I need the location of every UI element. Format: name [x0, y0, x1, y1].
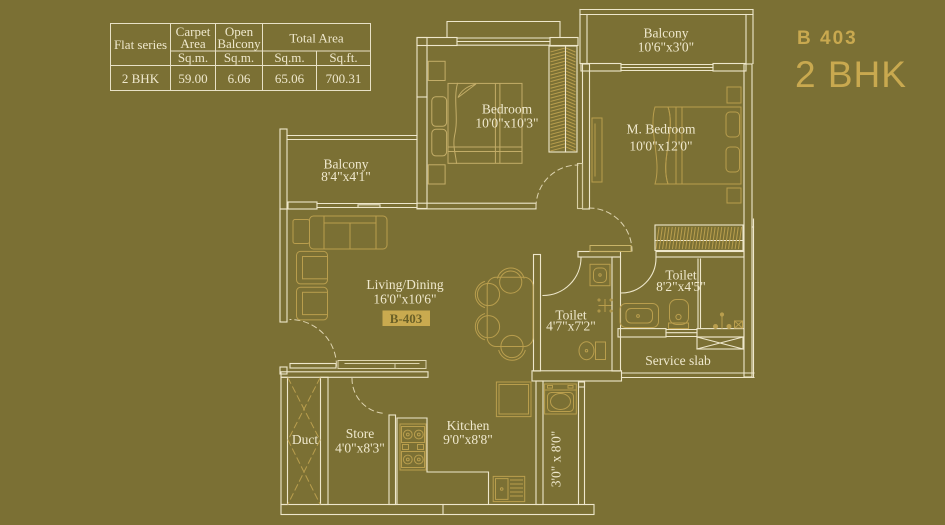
- svg-text:Sq.m.: Sq.m.: [178, 50, 208, 65]
- svg-text:59.00: 59.00: [178, 71, 207, 86]
- svg-text:8'4"x4'1": 8'4"x4'1": [321, 169, 371, 184]
- svg-text:Store: Store: [346, 426, 375, 441]
- svg-text:6.06: 6.06: [228, 71, 251, 86]
- svg-text:16'0"x10'6": 16'0"x10'6": [373, 292, 436, 307]
- svg-text:Balcony: Balcony: [217, 36, 261, 51]
- svg-text:2 BHK: 2 BHK: [122, 71, 160, 86]
- svg-text:9'0"x8'8": 9'0"x8'8": [443, 432, 493, 447]
- svg-text:Flat series: Flat series: [114, 37, 167, 52]
- svg-text:4'7"x7'2": 4'7"x7'2": [546, 319, 596, 334]
- svg-text:Sq.m.: Sq.m.: [224, 50, 254, 65]
- svg-text:Sq.m.: Sq.m.: [274, 50, 304, 65]
- svg-text:Balcony: Balcony: [644, 26, 689, 41]
- svg-text:B 403: B 403: [797, 28, 858, 49]
- svg-text:700.31: 700.31: [326, 71, 362, 86]
- svg-text:8'2"x4'5": 8'2"x4'5": [656, 279, 706, 294]
- svg-text:2 BHK: 2 BHK: [795, 54, 907, 95]
- svg-text:Bedroom: Bedroom: [482, 102, 533, 117]
- svg-text:10'6"x3'0": 10'6"x3'0": [638, 40, 694, 55]
- svg-text:Sq.ft.: Sq.ft.: [329, 50, 357, 65]
- svg-text:Area: Area: [180, 36, 205, 51]
- svg-text:B-403: B-403: [390, 311, 423, 326]
- svg-text:3'0" x 8'0": 3'0" x 8'0": [549, 431, 564, 487]
- svg-text:10'0"x10'3": 10'0"x10'3": [475, 116, 538, 131]
- svg-text:65.06: 65.06: [275, 71, 305, 86]
- svg-text:Service slab: Service slab: [645, 353, 711, 368]
- svg-text:Living/Dining: Living/Dining: [366, 277, 443, 292]
- svg-text:Duct: Duct: [292, 432, 318, 447]
- svg-text:4'0"x8'3": 4'0"x8'3": [335, 441, 385, 456]
- svg-text:M. Bedroom: M. Bedroom: [627, 122, 696, 137]
- svg-text:Total Area: Total Area: [289, 31, 344, 46]
- svg-text:Kitchen: Kitchen: [447, 418, 490, 433]
- svg-text:10'0"x12'0": 10'0"x12'0": [629, 139, 692, 154]
